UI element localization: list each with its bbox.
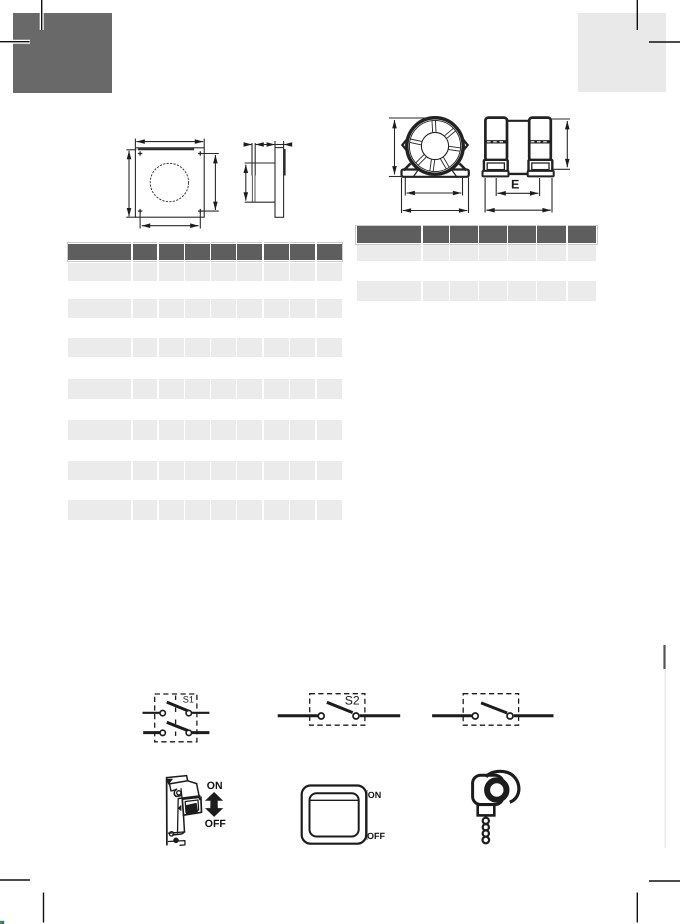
svg-text:OFF: OFF xyxy=(205,818,227,830)
svg-text:ON: ON xyxy=(207,780,223,792)
svg-text:ON: ON xyxy=(368,790,382,800)
svg-text:S2: S2 xyxy=(345,693,360,707)
svg-text:S1: S1 xyxy=(183,694,194,704)
svg-text:E: E xyxy=(511,178,519,192)
svg-text:OFF: OFF xyxy=(367,831,385,841)
